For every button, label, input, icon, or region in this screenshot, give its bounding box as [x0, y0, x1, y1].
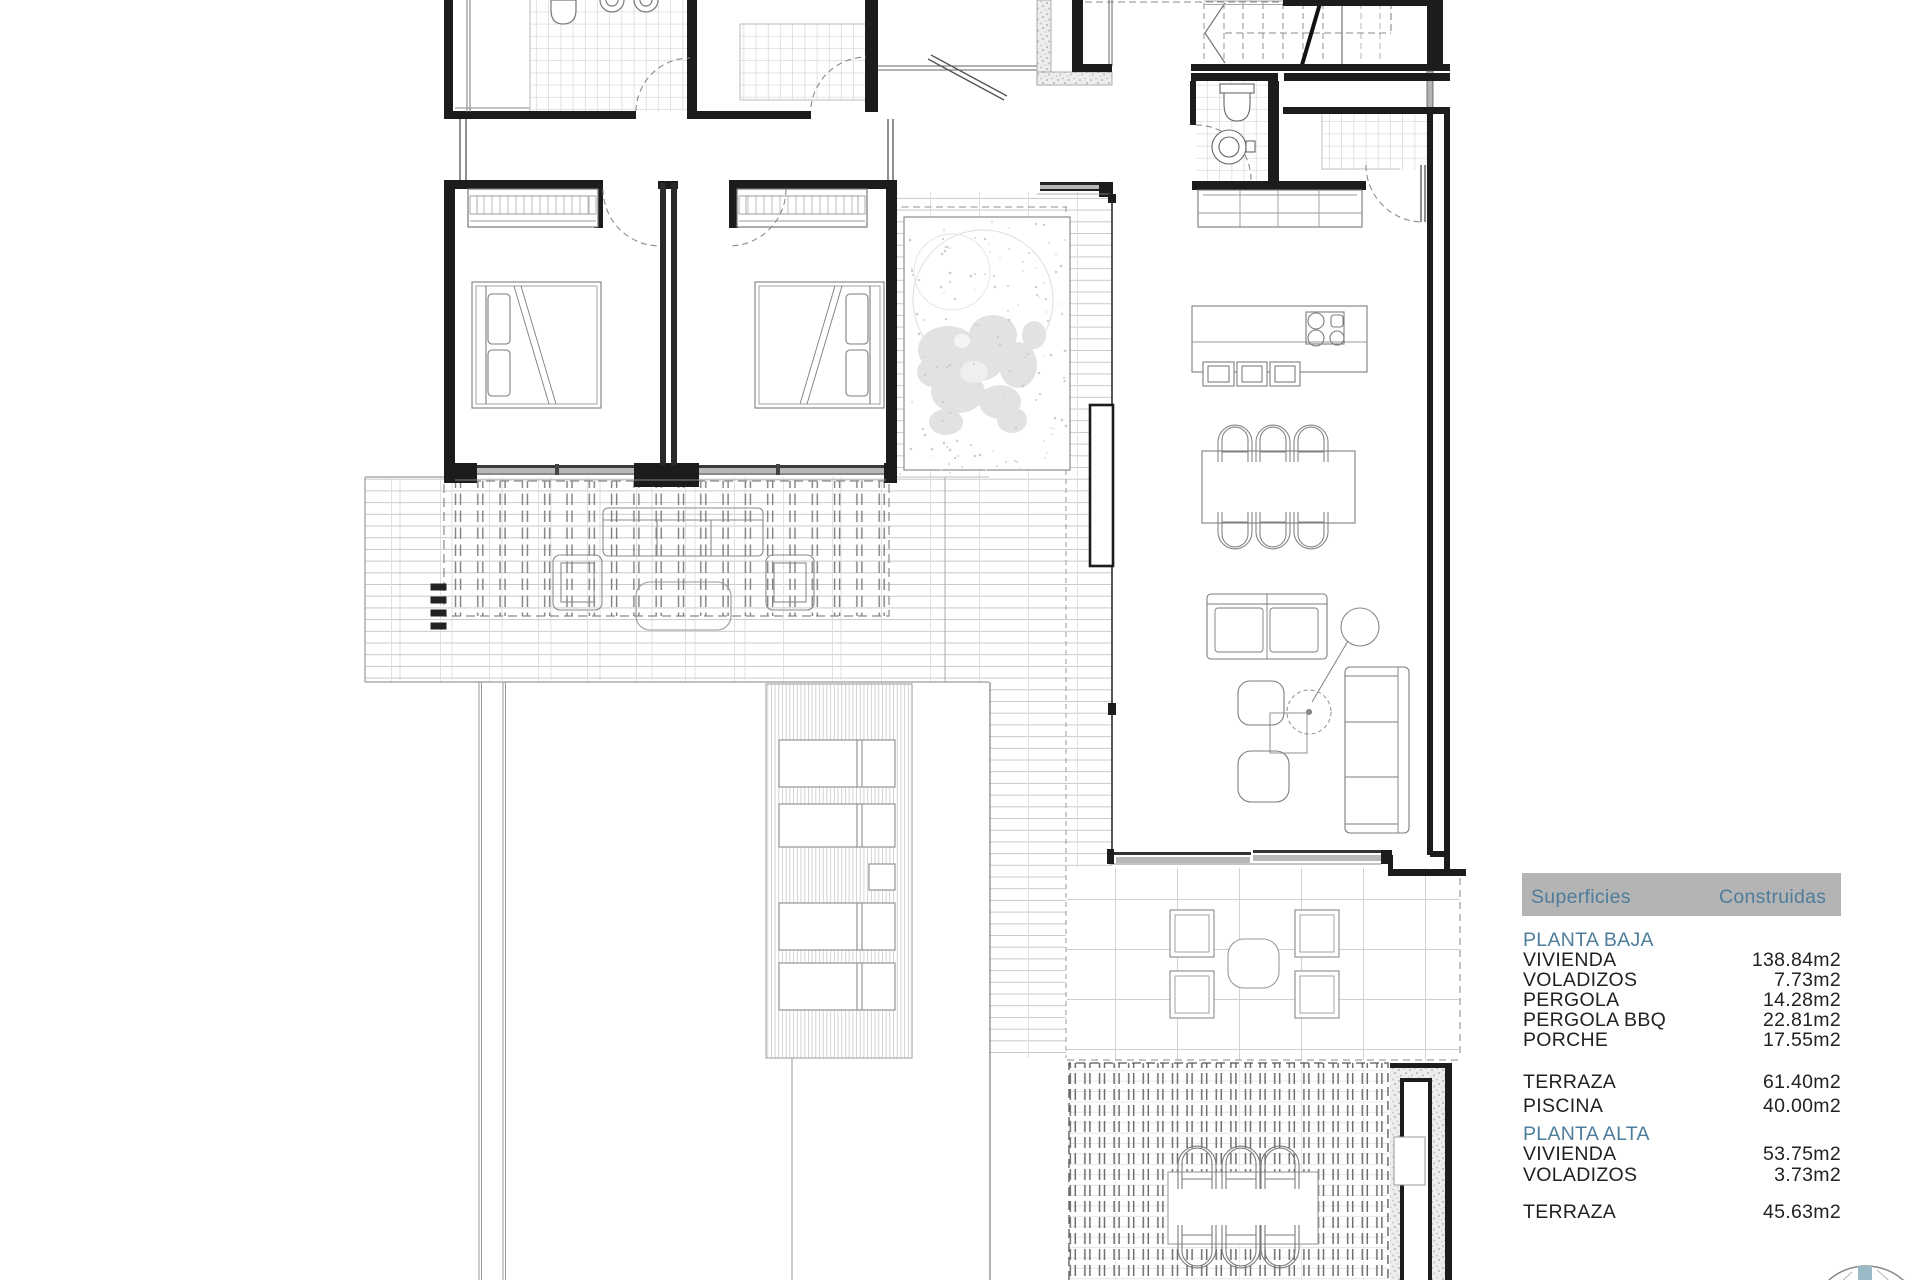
svg-text:PISCINA: PISCINA: [1523, 1095, 1603, 1117]
svg-text:TERRAZA: TERRAZA: [1523, 1201, 1616, 1223]
svg-text:3.73m2: 3.73m2: [1774, 1164, 1841, 1186]
svg-text:53.75m2: 53.75m2: [1763, 1143, 1841, 1165]
svg-text:Construidas: Construidas: [1719, 886, 1826, 908]
svg-text:VIVIENDA: VIVIENDA: [1523, 949, 1616, 971]
svg-text:TERRAZA: TERRAZA: [1523, 1071, 1616, 1093]
svg-text:PLANTA ALTA: PLANTA ALTA: [1523, 1123, 1650, 1145]
svg-text:PLANTA BAJA: PLANTA BAJA: [1523, 929, 1654, 951]
svg-text:PERGOLA BBQ: PERGOLA BBQ: [1523, 1009, 1666, 1031]
svg-text:45.63m2: 45.63m2: [1763, 1201, 1841, 1223]
svg-text:138.84m2: 138.84m2: [1752, 949, 1841, 971]
svg-text:Superficies: Superficies: [1531, 886, 1631, 908]
svg-text:61.40m2: 61.40m2: [1763, 1071, 1841, 1093]
svg-text:VOLADIZOS: VOLADIZOS: [1523, 969, 1637, 991]
svg-text:VIVIENDA: VIVIENDA: [1523, 1143, 1616, 1165]
svg-text:14.28m2: 14.28m2: [1763, 989, 1841, 1011]
svg-text:7.73m2: 7.73m2: [1774, 969, 1841, 991]
svg-text:VOLADIZOS: VOLADIZOS: [1523, 1164, 1637, 1186]
svg-text:PORCHE: PORCHE: [1523, 1029, 1608, 1051]
svg-text:17.55m2: 17.55m2: [1763, 1029, 1841, 1051]
svg-text:22.81m2: 22.81m2: [1763, 1009, 1841, 1031]
svg-text:40.00m2: 40.00m2: [1763, 1095, 1841, 1117]
svg-text:PERGOLA: PERGOLA: [1523, 989, 1619, 1011]
